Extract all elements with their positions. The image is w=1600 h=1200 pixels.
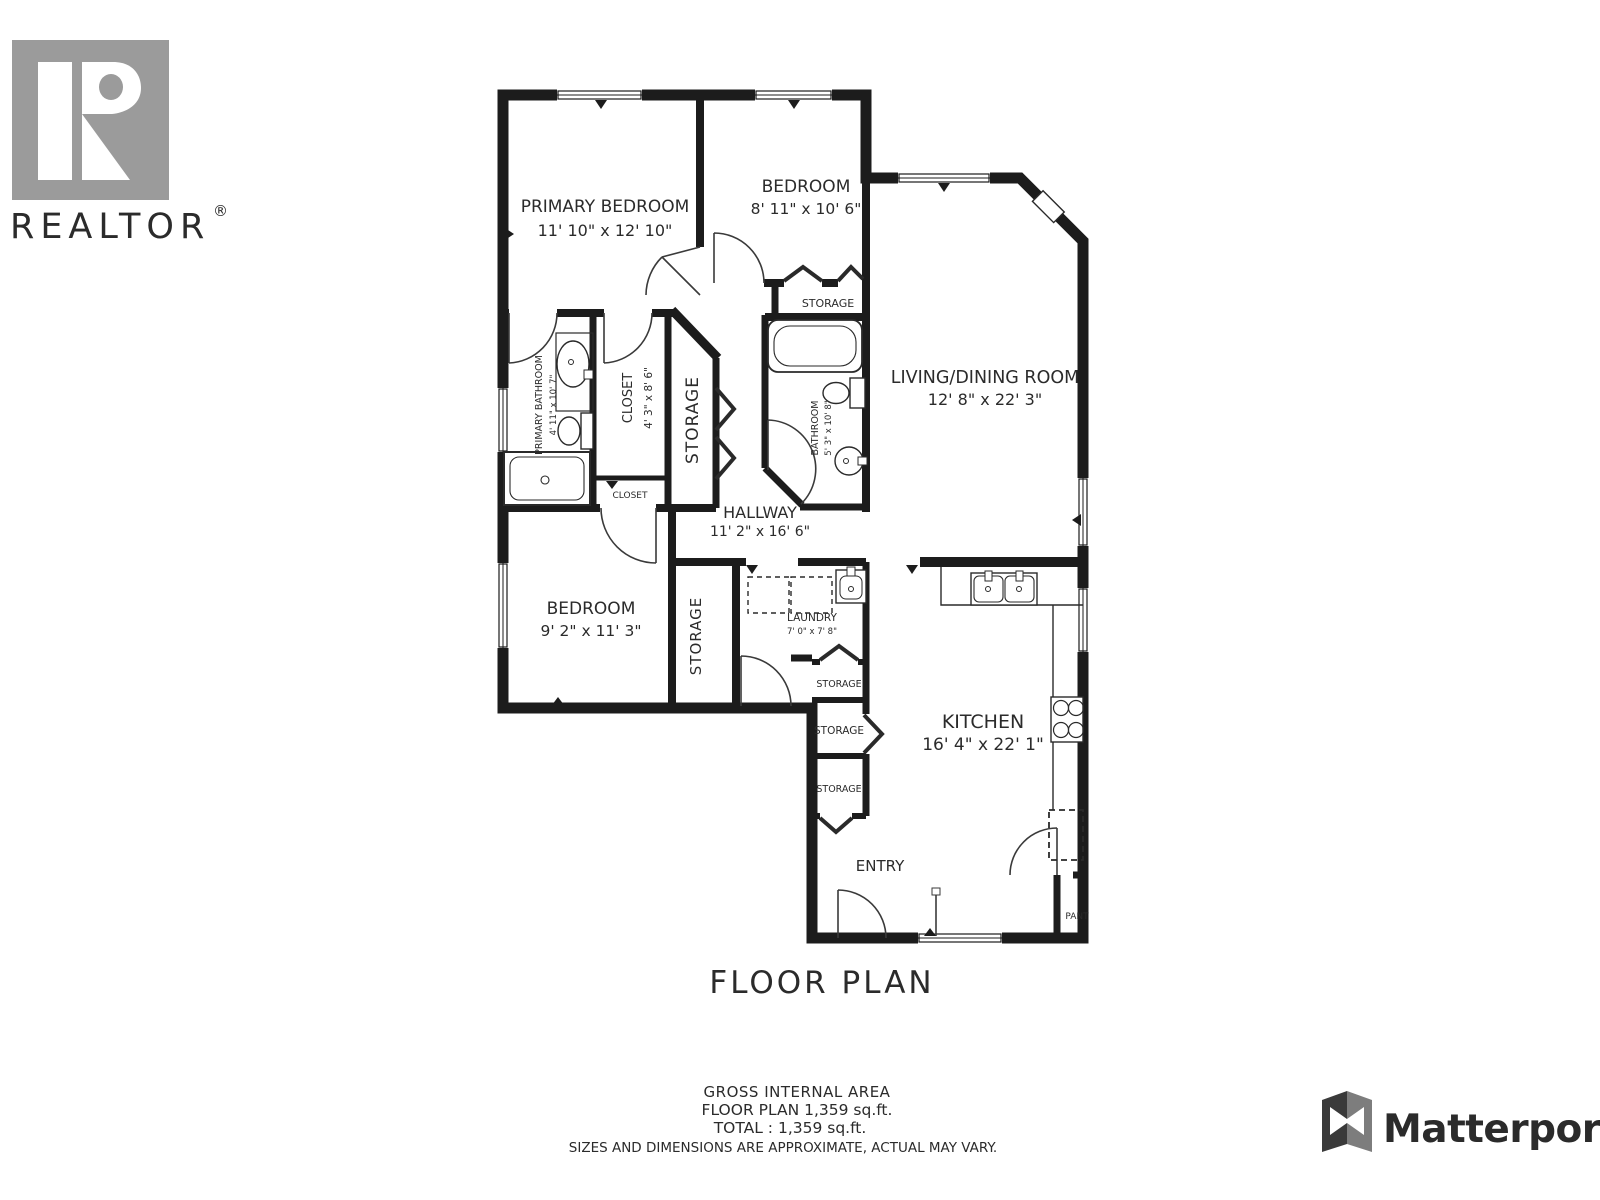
- window: [1077, 588, 1089, 652]
- marker-triangle: [552, 697, 564, 705]
- laundry-tap: [847, 567, 855, 576]
- room-label-entry: ENTRY: [856, 857, 905, 875]
- window: [557, 89, 642, 101]
- kitchen-tap-left: [985, 571, 992, 581]
- wall-hall-storage-diagonal: [672, 310, 718, 358]
- room-dims-kitchen: 16' 4" x 22' 1": [922, 735, 1044, 755]
- marker-triangle: [938, 183, 950, 192]
- door-bedroom-top: [714, 233, 764, 283]
- room-dims-bathroom: 5' 3" x 10' 8": [824, 400, 834, 455]
- chevron-storage-top-2: [838, 267, 863, 281]
- window: [497, 563, 509, 648]
- room-label-kitchen: KITCHEN: [942, 711, 1024, 733]
- floor-plan-page: REALTOR ®: [0, 0, 1600, 1200]
- matterport-logo-word: Matterport: [1383, 1107, 1600, 1152]
- matterport-icon: [1322, 1091, 1372, 1152]
- door-laundry-alcove: [741, 656, 791, 706]
- footer-area-title: GROSS INTERNAL AREA: [704, 1083, 891, 1101]
- floor-plan-canvas: REALTOR ®: [0, 0, 1600, 1200]
- door-primary-bathroom: [509, 313, 557, 363]
- marker-triangle: [606, 481, 618, 489]
- realtor-logo-word: REALTOR: [10, 207, 210, 247]
- window: [898, 172, 990, 184]
- primary-toilet-tank: [581, 413, 593, 449]
- kitchen-sink: [971, 573, 1037, 605]
- dryer-dashed: [791, 577, 832, 613]
- vanity-tap: [584, 370, 593, 379]
- window: [1077, 478, 1089, 546]
- room-label-closet-small: CLOSET: [613, 491, 648, 501]
- room-label-bedroom-top: BEDROOM: [762, 177, 851, 197]
- window: [755, 89, 832, 101]
- realtor-r-stem: [38, 62, 72, 180]
- footer-disclaimer: SIZES AND DIMENSIONS ARE APPROXIMATE, AC…: [569, 1140, 997, 1156]
- window: [497, 388, 509, 452]
- primary-toilet-bowl: [558, 417, 580, 445]
- marker-triangle: [906, 565, 918, 574]
- marker-triangle: [788, 100, 800, 109]
- kitchen-tap-right: [1016, 571, 1023, 581]
- bathtub-basin: [774, 326, 856, 366]
- floor-plan-title: FLOOR PLAN: [709, 965, 934, 1001]
- door-pantry: [1010, 828, 1057, 875]
- chevron-storage-top-1: [784, 267, 822, 281]
- room-label-storage-stack-1: STORAGE: [816, 679, 861, 690]
- chevron-stack-bottom: [820, 818, 852, 832]
- toilet-tank: [850, 378, 865, 408]
- room-dims-laundry: 7' 0" x 7' 8": [787, 627, 837, 637]
- room-dims-bedroom-lower: 9' 2" x 11' 3": [541, 622, 642, 640]
- room-labels: PRIMARY BEDROOM 11' 10" x 12' 10" BEDROO…: [521, 177, 1089, 922]
- door-closet: [604, 313, 652, 363]
- bathroom-sink-tap: [858, 457, 867, 465]
- room-dims-primary-bathroom: 4' 11" x 10' 7": [549, 375, 559, 436]
- room-dims-hallway: 11' 2" x 16' 6": [710, 524, 810, 540]
- room-label-pantry: PANT: [1065, 912, 1089, 922]
- room-dims-living-dining: 12' 8" x 22' 3": [928, 390, 1042, 409]
- door-leaf-cap: [932, 888, 940, 895]
- room-label-storage-lower: STORAGE: [687, 597, 705, 675]
- room-dims-bedroom-top: 8' 11" x 10' 6": [751, 200, 862, 218]
- room-dims-primary-bedroom: 11' 10" x 12' 10": [538, 221, 673, 240]
- realtor-registered-symbol: ®: [213, 202, 228, 220]
- marker-triangle: [746, 565, 758, 574]
- realtor-logo: REALTOR ®: [10, 40, 228, 247]
- footer: GROSS INTERNAL AREA FLOOR PLAN 1,359 sq.…: [569, 1083, 997, 1156]
- footer-total-area: TOTAL : 1,359 sq.ft.: [713, 1119, 867, 1137]
- room-label-laundry: LAUNDRY: [787, 612, 838, 624]
- wall-bathroom-diagonal: [765, 468, 802, 505]
- matterport-logo: Matterport: [1322, 1091, 1600, 1152]
- room-dims-closet: 4' 3" x 8' 6": [643, 367, 655, 429]
- realtor-r-counter: [99, 74, 123, 100]
- door-entry-front: [838, 890, 886, 938]
- room-label-storage-stack-3: STORAGE: [816, 784, 861, 795]
- room-label-closet: CLOSET: [621, 373, 636, 424]
- door-bedroom-lower: [601, 508, 656, 563]
- room-label-bedroom-lower: BEDROOM: [547, 599, 636, 619]
- room-label-primary-bathroom: PRIMARY BATHROOM: [534, 355, 545, 455]
- marker-triangle: [1072, 514, 1081, 526]
- door-primary-bedroom: [646, 247, 700, 295]
- shower-stall: [504, 452, 590, 505]
- room-label-storage-hall: STORAGE: [683, 376, 703, 464]
- footer-floor-plan-area: FLOOR PLAN 1,359 sq.ft.: [702, 1101, 893, 1119]
- chevron-stack-top: [820, 646, 858, 660]
- room-label-primary-bedroom: PRIMARY BEDROOM: [521, 197, 690, 217]
- marker-triangle: [595, 100, 607, 109]
- marker-triangle: [505, 228, 514, 240]
- washer-dashed: [748, 577, 789, 613]
- room-label-bathroom: BATHROOM: [810, 401, 821, 456]
- room-label-living-dining: LIVING/DINING ROOM: [891, 368, 1080, 388]
- room-label-hallway: HALLWAY: [723, 503, 797, 522]
- room-label-storage-stack-2: STORAGE: [814, 725, 864, 737]
- chevron-stack-right: [864, 715, 882, 753]
- room-label-storage-top: STORAGE: [802, 297, 854, 310]
